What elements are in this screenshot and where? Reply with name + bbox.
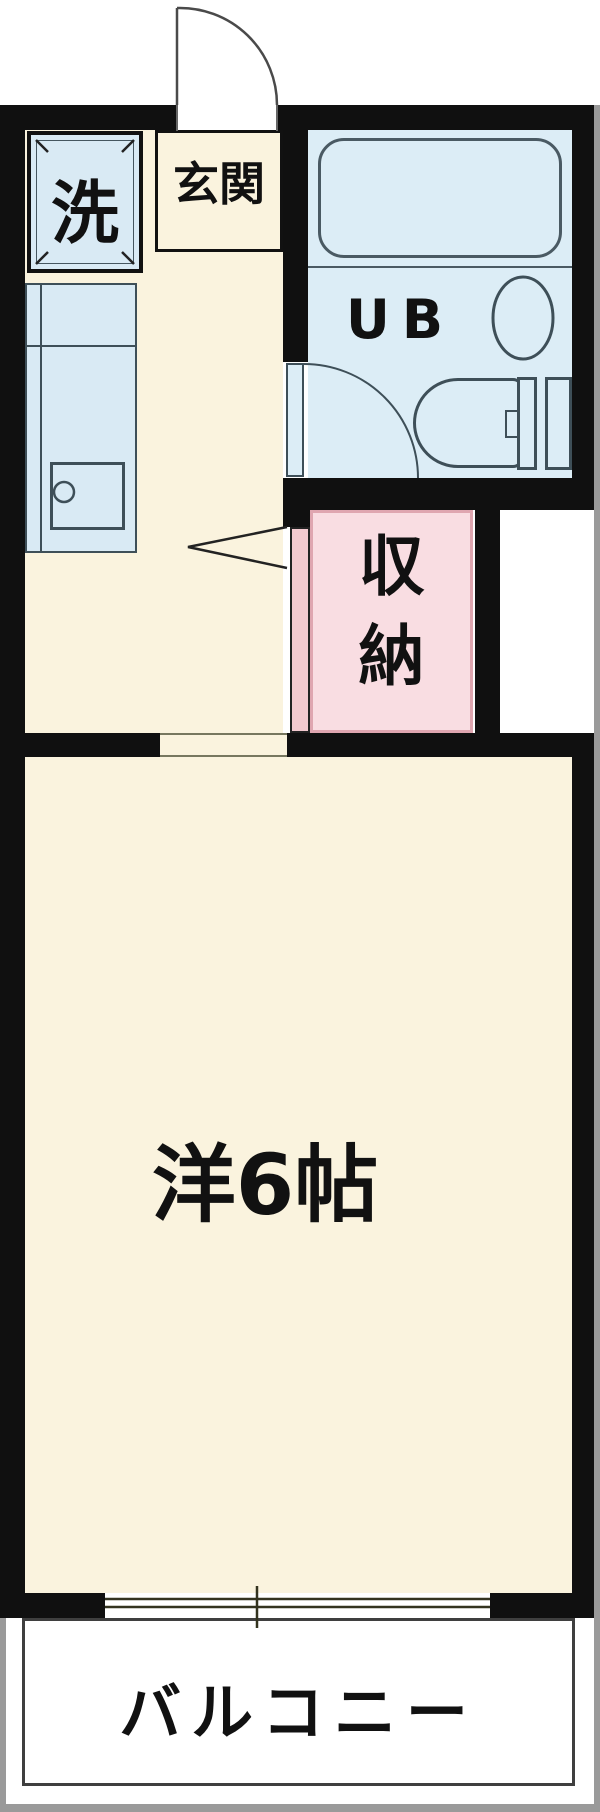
entrance-door-swing-arc (177, 8, 277, 105)
room-doorway-opening (160, 733, 287, 757)
washer-label: 洗 (27, 158, 143, 257)
kitchen-counter-edge-line (40, 285, 42, 551)
wall-top-right (277, 105, 600, 130)
wall-entrance-ub (283, 105, 308, 362)
wall-ub-bottom (283, 478, 600, 510)
storage-label: 収 納 (310, 522, 473, 702)
wall-closet-right (475, 510, 500, 733)
wall-room-top-right (287, 733, 597, 757)
floorplan: 玄関 洗 UB 収 納 洋6帖 バルコニー (0, 0, 600, 1812)
storage-closet-door (290, 527, 310, 733)
kitchen-counter-divider (27, 345, 135, 347)
toilet-back-panel (545, 377, 572, 470)
wall-top-left (0, 105, 177, 130)
void-space (500, 510, 593, 733)
entrance-door-jamb-right (276, 105, 278, 131)
outer-frame-bottom (0, 1804, 600, 1812)
toilet-tank (517, 377, 537, 470)
bathtub (318, 138, 562, 258)
wall-bottom-left (0, 1593, 105, 1618)
outer-frame-right (594, 105, 600, 1812)
balcony-label: バルコニー (22, 1662, 575, 1752)
wall-bottom-right (490, 1593, 597, 1618)
wall-closet-corner (283, 478, 310, 527)
storage-label-char2: 納 (310, 612, 473, 702)
unit-bath-door (286, 363, 304, 477)
outer-frame-left (0, 1618, 6, 1812)
unit-bath-label: UB (318, 288, 483, 351)
kitchen-sink (50, 462, 125, 530)
wall-room-top-left (0, 733, 160, 757)
entrance-label: 玄関 (155, 148, 283, 214)
unit-bath-divider-line (308, 266, 575, 268)
main-room-label: 洋6帖 (115, 1118, 415, 1239)
wall-left (0, 105, 25, 1618)
entrance-door-jamb-left (176, 105, 178, 131)
storage-label-char1: 収 (310, 522, 473, 612)
kitchen-counter (25, 283, 137, 553)
